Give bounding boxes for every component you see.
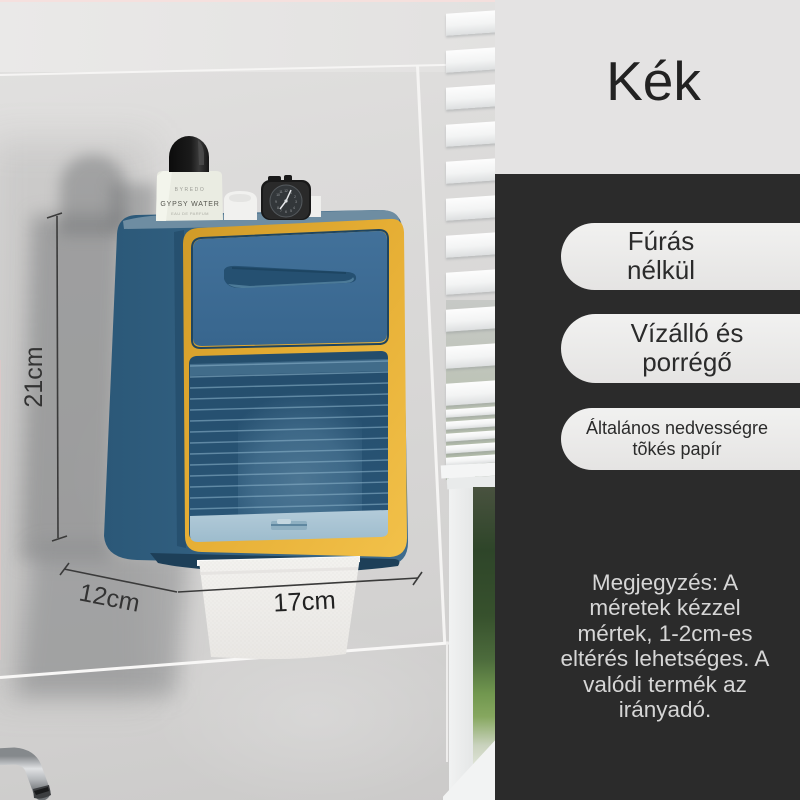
- svg-text:7: 7: [280, 209, 282, 213]
- svg-text:EAU DE PARFUM: EAU DE PARFUM: [171, 211, 209, 216]
- svg-text:9: 9: [275, 200, 277, 204]
- svg-text:6: 6: [285, 210, 287, 214]
- svg-text:3: 3: [295, 200, 297, 204]
- svg-text:2: 2: [294, 195, 296, 199]
- svg-text:8: 8: [277, 206, 279, 210]
- svg-text:21cm: 21cm: [20, 346, 48, 407]
- svg-text:12cm: 12cm: [77, 579, 142, 618]
- svg-text:12: 12: [284, 189, 288, 193]
- svg-text:17cm: 17cm: [273, 586, 337, 617]
- svg-text:5: 5: [290, 209, 292, 213]
- svg-text:BYREDO: BYREDO: [175, 187, 206, 193]
- svg-text:4: 4: [293, 206, 295, 210]
- svg-text:GYPSY WATER: GYPSY WATER: [160, 201, 219, 208]
- svg-text:11: 11: [279, 190, 283, 194]
